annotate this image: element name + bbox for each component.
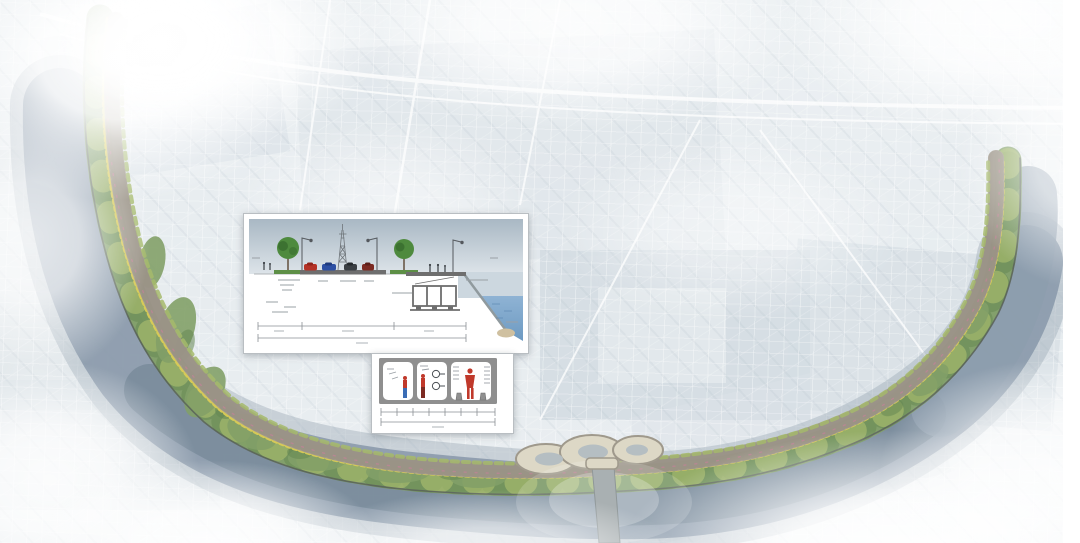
cross-section-drawing [244,214,528,353]
left-verge [274,270,302,274]
plan-overlay [0,0,1080,543]
river [60,105,1029,502]
box-culvert-drawing [410,277,460,310]
section-sky-right [458,272,523,298]
riprap [497,329,515,338]
node-pond [535,453,563,466]
dimension-lines [381,408,495,427]
roadway-deck [300,270,386,275]
node-pond [626,445,648,456]
culvert-cell [383,362,413,400]
structure-deck [406,272,466,276]
masterplan-canvas [0,0,1080,543]
dimension-lines [258,322,466,343]
human-figure-icon [403,376,407,398]
pier-platform [586,458,618,469]
culvert-section-inset [371,353,514,434]
levee-road [104,19,1002,477]
cross-section-inset [243,213,529,354]
culvert-section-drawing [372,354,513,433]
